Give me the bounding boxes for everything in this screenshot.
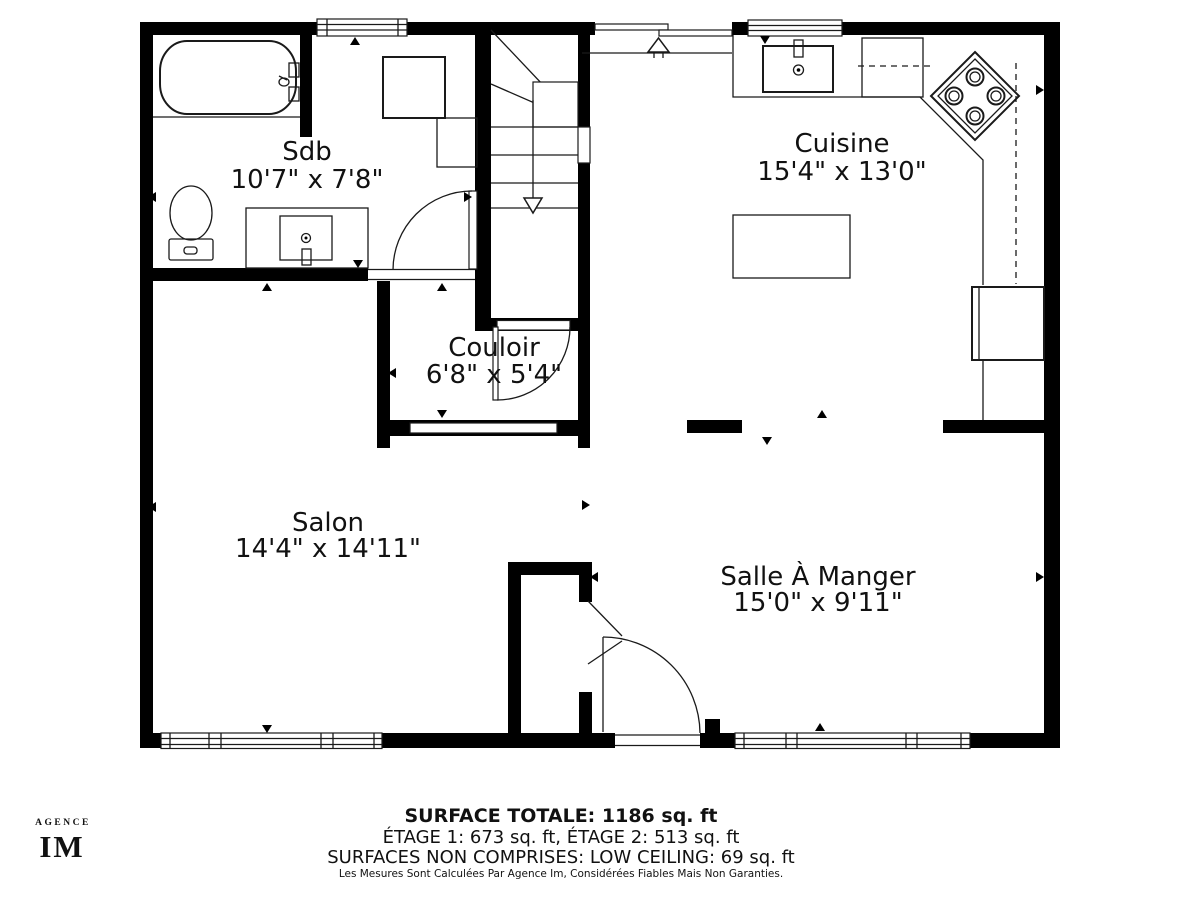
- room-dims-couloir: 6'8" x 5'4": [426, 360, 562, 390]
- window-bottom-dining: [735, 733, 970, 749]
- surface-summary: SURFACE TOTALE: 1186 sq. ft ÉTAGE 1: 673…: [327, 805, 794, 880]
- staircase: [491, 30, 590, 213]
- walls: [140, 22, 1060, 748]
- room-dims-salle-a-manger: 15'0" x 9'11": [733, 588, 902, 618]
- surface-total: SURFACE TOTALE: 1186 sq. ft: [405, 805, 718, 827]
- floor-plan: Sdb 10'7" x 7'8" Cuisine 15'4" x 13'0" C…: [0, 0, 1200, 900]
- stove: [931, 52, 1019, 140]
- room-dims-salon: 14'4" x 14'11": [235, 534, 421, 564]
- kitchen-sink: [763, 40, 833, 92]
- room-label-couloir: Couloir: [448, 333, 540, 363]
- window-top-kitchen: [748, 20, 842, 36]
- surface-floors: ÉTAGE 1: 673 sq. ft, ÉTAGE 2: 513 sq. ft: [383, 826, 740, 848]
- room-label-sdb: Sdb: [282, 137, 332, 167]
- agency-logo: AGENCE IM: [35, 818, 91, 864]
- kitchen-island: [733, 215, 850, 278]
- refrigerator: [972, 287, 1044, 360]
- room-label-cuisine: Cuisine: [794, 129, 889, 159]
- toilet: [169, 186, 213, 260]
- stair-niche: [578, 127, 590, 163]
- room-dims-cuisine: 15'4" x 13'0": [757, 157, 926, 187]
- doors: [393, 191, 700, 733]
- entry-arrow-icon: [648, 38, 669, 58]
- surface-excluded: SURFACES NON COMPRISES: LOW CEILING: 69 …: [327, 847, 794, 868]
- agency-logo-initials: IM: [39, 829, 84, 864]
- stair-opening: [497, 321, 570, 331]
- room-dims-sdb: 10'7" x 7'8": [231, 165, 384, 195]
- bathtub: [153, 41, 300, 117]
- vanity-sink: [246, 208, 368, 268]
- agency-logo-small-text: AGENCE: [35, 818, 91, 828]
- bathroom-door: [393, 191, 477, 270]
- surface-disclaimer: Les Mesures Sont Calculées Par Agence Im…: [339, 868, 783, 880]
- couloir-opening: [410, 423, 557, 433]
- window-top-bath: [317, 19, 407, 36]
- kitchen-cabinet: [862, 38, 923, 97]
- sliding-entry-door: [582, 24, 732, 58]
- closet-appliances: [383, 57, 477, 167]
- window-bottom-salon: [161, 733, 382, 749]
- dining-nook-door: [588, 601, 700, 733]
- kitchen-fixtures: [733, 35, 1044, 420]
- floor-plan-page: Sdb 10'7" x 7'8" Cuisine 15'4" x 13'0" C…: [0, 0, 1200, 900]
